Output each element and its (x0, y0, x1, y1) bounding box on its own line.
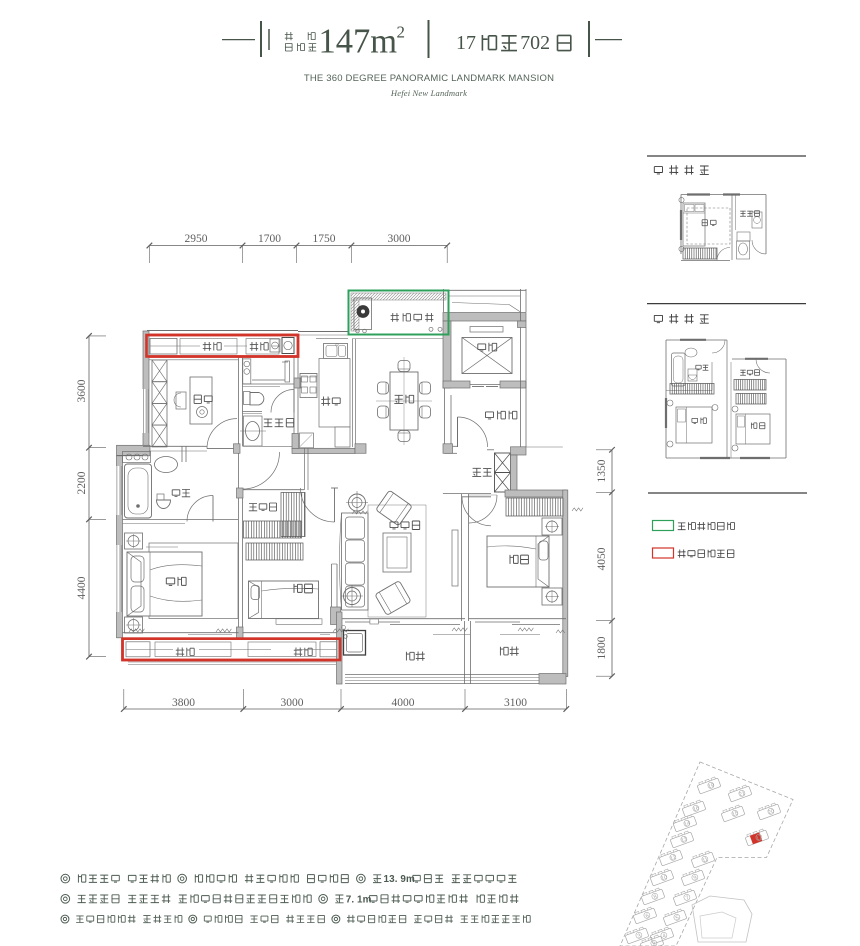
svg-text:1750: 1750 (313, 233, 336, 245)
svg-text:3100: 3100 (504, 697, 527, 709)
svg-text:m: m (363, 894, 372, 905)
svg-text:3000: 3000 (388, 233, 411, 245)
svg-text:147m: 147m (319, 23, 398, 61)
svg-text:1350: 1350 (596, 459, 608, 482)
svg-text:THE 360 DEGREE PANORAMIC LANDM: THE 360 DEGREE PANORAMIC LANDMARK MANSIO… (304, 73, 554, 84)
svg-text:4000: 4000 (392, 697, 415, 709)
svg-text:702: 702 (520, 32, 550, 54)
svg-text:1800: 1800 (596, 636, 608, 659)
svg-text:3600: 3600 (76, 379, 88, 402)
svg-text:Hefei New Landmark: Hefei New Landmark (390, 88, 467, 98)
svg-text:2: 2 (397, 23, 406, 42)
svg-text:3000: 3000 (281, 697, 304, 709)
svg-text:1700: 1700 (258, 233, 281, 245)
svg-text:2950: 2950 (185, 233, 208, 245)
svg-text:m: m (406, 874, 415, 885)
svg-text:.: . (351, 894, 354, 905)
svg-text:17: 17 (456, 32, 476, 54)
svg-text:4400: 4400 (76, 576, 88, 599)
svg-text:.: . (395, 874, 398, 885)
svg-text:4050: 4050 (596, 547, 608, 570)
svg-text:2200: 2200 (76, 471, 88, 494)
svg-text:3800: 3800 (172, 697, 195, 709)
